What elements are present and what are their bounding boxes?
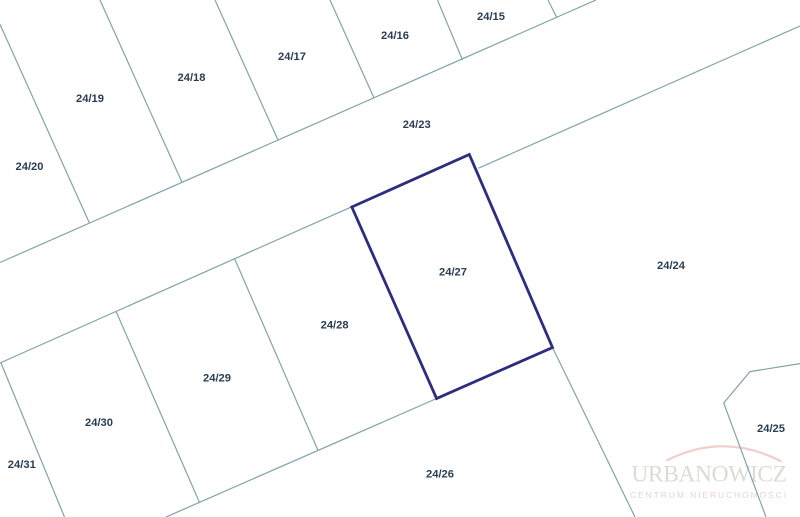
svg-text:CENTRUM NIERUCHOMOŚCI: CENTRUM NIERUCHOMOŚCI [630,489,788,500]
svg-text:24/16: 24/16 [381,30,409,42]
svg-text:24/17: 24/17 [278,51,306,63]
svg-text:24/19: 24/19 [76,93,104,105]
svg-text:24/29: 24/29 [203,373,231,385]
svg-text:24/28: 24/28 [321,320,349,332]
svg-text:24/31: 24/31 [8,459,36,471]
svg-text:24/30: 24/30 [85,417,113,429]
svg-text:24/27: 24/27 [439,267,467,279]
svg-text:24/20: 24/20 [16,161,44,173]
svg-text:24/18: 24/18 [178,72,206,84]
svg-text:24/25: 24/25 [757,423,785,435]
svg-text:24/23: 24/23 [403,119,431,131]
svg-text:24/15: 24/15 [477,11,505,23]
svg-text:URBANOWICZ: URBANOWICZ [631,462,786,488]
svg-text:24/24: 24/24 [657,260,686,272]
svg-text:24/26: 24/26 [426,469,454,481]
